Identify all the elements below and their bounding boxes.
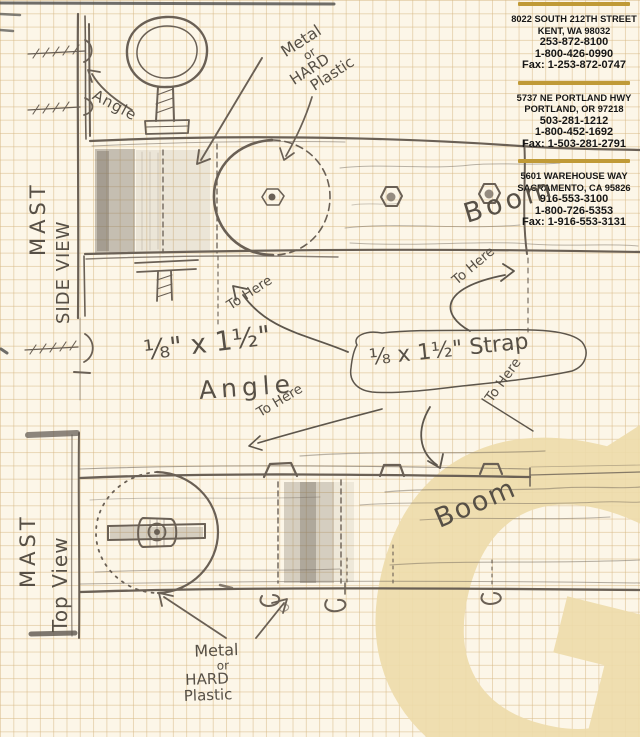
fax-line: Fax: 1-503-281-2791 — [509, 139, 639, 151]
side-view-label-sideview: SIDE VIEW — [53, 221, 74, 324]
angle-web-shading — [95, 149, 210, 253]
address-line: 5737 NE PORTLAND HWY — [509, 93, 639, 105]
top-view-label-mast: MAST — [16, 513, 40, 588]
address-block-kent: 8022 SOUTH 212TH STREET KENT, WA 98032 2… — [509, 14, 639, 72]
material-note-line: Plastic — [184, 687, 241, 705]
dashed-construction-lines-side — [163, 144, 528, 332]
gold-divider-bar — [518, 81, 630, 85]
top-view-label-topview: Top View — [48, 536, 72, 632]
scanned-sketch-page: G — [0, 0, 640, 737]
material-note-bottom: Metal or HARD Plastic — [182, 642, 240, 705]
fax-line: Fax: 1-916-553-3131 — [509, 217, 639, 229]
roller-top-view — [96, 472, 218, 593]
phone-line: 253-872-8100 — [509, 37, 639, 49]
material-note-arrows-bottom — [159, 593, 289, 638]
phone-line: 1-800-452-1692 — [509, 127, 639, 139]
address-line: 8022 SOUTH 212TH STREET — [509, 14, 639, 26]
fax-line: Fax: 1-253-872-0747 — [509, 60, 639, 72]
to-here-3-arrow — [258, 409, 382, 443]
material-note-line: Metal — [194, 642, 239, 660]
side-view-label-mast: MAST — [26, 181, 50, 256]
to-here-2-arrowhead — [501, 264, 514, 281]
address-block-portland: 5737 NE PORTLAND HWY PORTLAND, OR 97218 … — [509, 93, 639, 151]
eye-bolt-top — [127, 17, 207, 134]
eye-bolt-bottom — [135, 260, 198, 301]
gold-divider-bar — [518, 159, 630, 163]
gold-divider-bar — [518, 2, 630, 6]
address-line: PORTLAND, OR 97218 — [509, 104, 639, 116]
roller-side-view — [214, 140, 330, 255]
